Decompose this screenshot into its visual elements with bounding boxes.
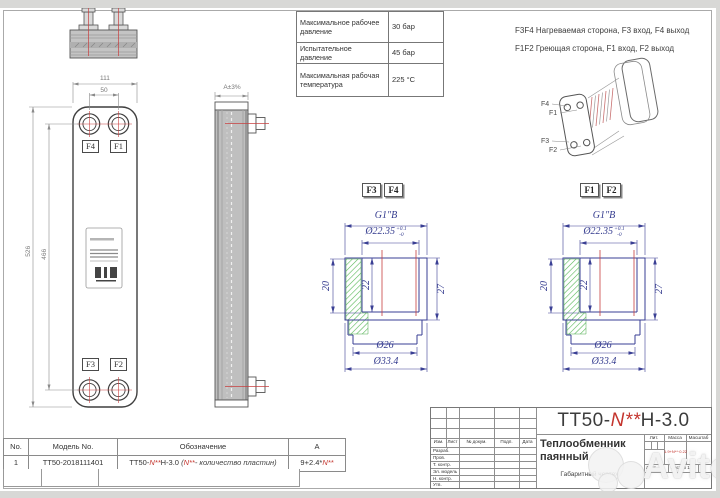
designation-n: N**: [149, 458, 160, 467]
spec-value: 225 °C: [389, 64, 444, 97]
table-row: Максимальное рабочее давление 30 бар: [297, 12, 444, 43]
tolerance-minus: -0: [614, 233, 625, 239]
tb-row-tkontr: Т. контр.: [433, 463, 451, 468]
detail-left-depth-outer: 20: [322, 275, 332, 297]
heat-exchanger-drawing: 111 50 526 466 F4 F1 F3 F2 A±3% F4 F1 F3…: [0, 0, 720, 498]
bore-value: Ø22.35: [583, 227, 613, 237]
designation-suffix: H-3.0: [161, 458, 179, 467]
model-table: No. Модель No. Обозначение A 1 TT50-2018…: [3, 438, 346, 472]
designation-prefix: TT50-: [129, 458, 149, 467]
note-heating-side: F1F2 Греющая сторона, F1 вход, F2 выход: [515, 45, 674, 53]
iso-label-f3: F3: [541, 138, 549, 145]
note-heated-side: F3F4 Нагреваемая сторона, F3 вход, F4 вы…: [515, 27, 689, 35]
iso-label-f2: F2: [549, 147, 557, 154]
tb-row-utv: Утв.: [433, 483, 442, 488]
spec-value: 45 бар: [389, 43, 444, 64]
photo-edge-bottom: [0, 491, 720, 498]
col-designation: Обозначение: [118, 439, 289, 456]
table-row: Максимальная рабочая температура 225 °C: [297, 64, 444, 97]
detail-right-dia-small: Ø26: [581, 341, 625, 351]
code-suffix: H-3.0: [641, 410, 690, 432]
spec-table: Максимальное рабочее давление 30 бар Исп…: [296, 11, 444, 97]
detail-right-dia-large: Ø33.4: [582, 357, 626, 367]
col-a: A: [289, 439, 346, 456]
col-no: No.: [4, 439, 29, 456]
spec-label: Максимальное рабочее давление: [297, 12, 389, 43]
dim-port-spacing: 50: [84, 88, 124, 95]
detail-right-bore: Ø22.35+0.1-0: [570, 227, 638, 239]
iso-label-f4: F4: [541, 101, 549, 108]
code-n: N**: [611, 410, 641, 432]
port-label-f4: F4: [82, 140, 99, 153]
tb-col-docnum: № докум.: [459, 440, 494, 445]
detail-right-depth-inner: 22: [580, 274, 590, 296]
detail-left-depth-inner: 22: [362, 274, 372, 296]
nameplate: [86, 228, 122, 288]
iso-view-art: [552, 57, 659, 157]
tb-row-prov: Пров.: [433, 456, 445, 461]
col-model: Модель No.: [29, 439, 118, 456]
note-text: - количество пластин): [195, 458, 277, 467]
detail-left-dia-small: Ø26: [363, 341, 407, 351]
tb-lit-label: Лит.: [644, 436, 664, 441]
tb-col-podp: Подп.: [494, 440, 519, 445]
detail-left-tag-f3: F3: [362, 183, 381, 197]
note-n: N**: [184, 458, 195, 467]
detail-right-thread: G1"B: [576, 211, 632, 221]
code-prefix: TT50-: [557, 410, 610, 432]
top-view-art: [70, 6, 137, 58]
port-label-f3: F3: [82, 358, 99, 371]
watermark-logo-circle: [598, 473, 618, 493]
spec-value: 30 бар: [389, 12, 444, 43]
tb-col-data: Дата: [519, 440, 536, 445]
tb-row-elmodel: Эл. модель: [433, 470, 457, 475]
detail-right-tag-f2: F2: [602, 183, 621, 197]
table-header-row: No. Модель No. Обозначение A: [4, 439, 346, 456]
tb-col-list: Лист: [446, 440, 459, 445]
empty-row: [3, 478, 300, 487]
detail-right-height: 27: [655, 278, 665, 300]
tb-col-izm: Изм.: [431, 440, 446, 445]
dim-thickness: A±3%: [207, 85, 257, 92]
tb-row-razrab: Разраб.: [433, 449, 450, 454]
detail-right-tag-f1: F1: [580, 183, 599, 197]
spec-label: Испытательное давление: [297, 43, 389, 64]
dim-port-height: 466: [42, 240, 49, 268]
dim-width: 111: [85, 76, 125, 83]
a-n: N**: [322, 458, 333, 467]
detail-left-thread: G1"B: [358, 211, 414, 221]
dim-height: 526: [26, 237, 33, 265]
detail-left-height: 27: [437, 278, 447, 300]
port-label-f2: F2: [110, 358, 127, 371]
tb-row-nkontr: Н. контр.: [433, 477, 452, 482]
detail-right-depth-outer: 20: [540, 275, 550, 297]
bore-value: Ø22.35: [365, 227, 395, 237]
detail-left-bore: Ø22.35+0.1-0: [352, 227, 420, 239]
a-prefix: 9+2.4*: [300, 458, 322, 467]
table-row: Испытательное давление 45 бар: [297, 43, 444, 64]
iso-label-f1: F1: [549, 110, 557, 117]
photo-edge-top: [0, 0, 720, 8]
watermark-logo-circle: [617, 461, 645, 489]
watermark-text: Avito: [643, 448, 720, 484]
spec-label: Максимальная рабочая температура: [297, 64, 389, 97]
tb-scale-label: Масштаб: [686, 436, 711, 441]
drawing-code: TT50-N**H-3.0: [536, 408, 711, 434]
tolerance-minus: -0: [396, 233, 407, 239]
tb-mass-label: Масса: [664, 436, 686, 441]
port-label-f1: F1: [110, 140, 127, 153]
detail-left-dia-large: Ø33.4: [364, 357, 408, 367]
photo-edge-right: [716, 0, 720, 498]
detail-left-tag-f4: F4: [384, 183, 403, 197]
side-view-art: [215, 92, 269, 407]
